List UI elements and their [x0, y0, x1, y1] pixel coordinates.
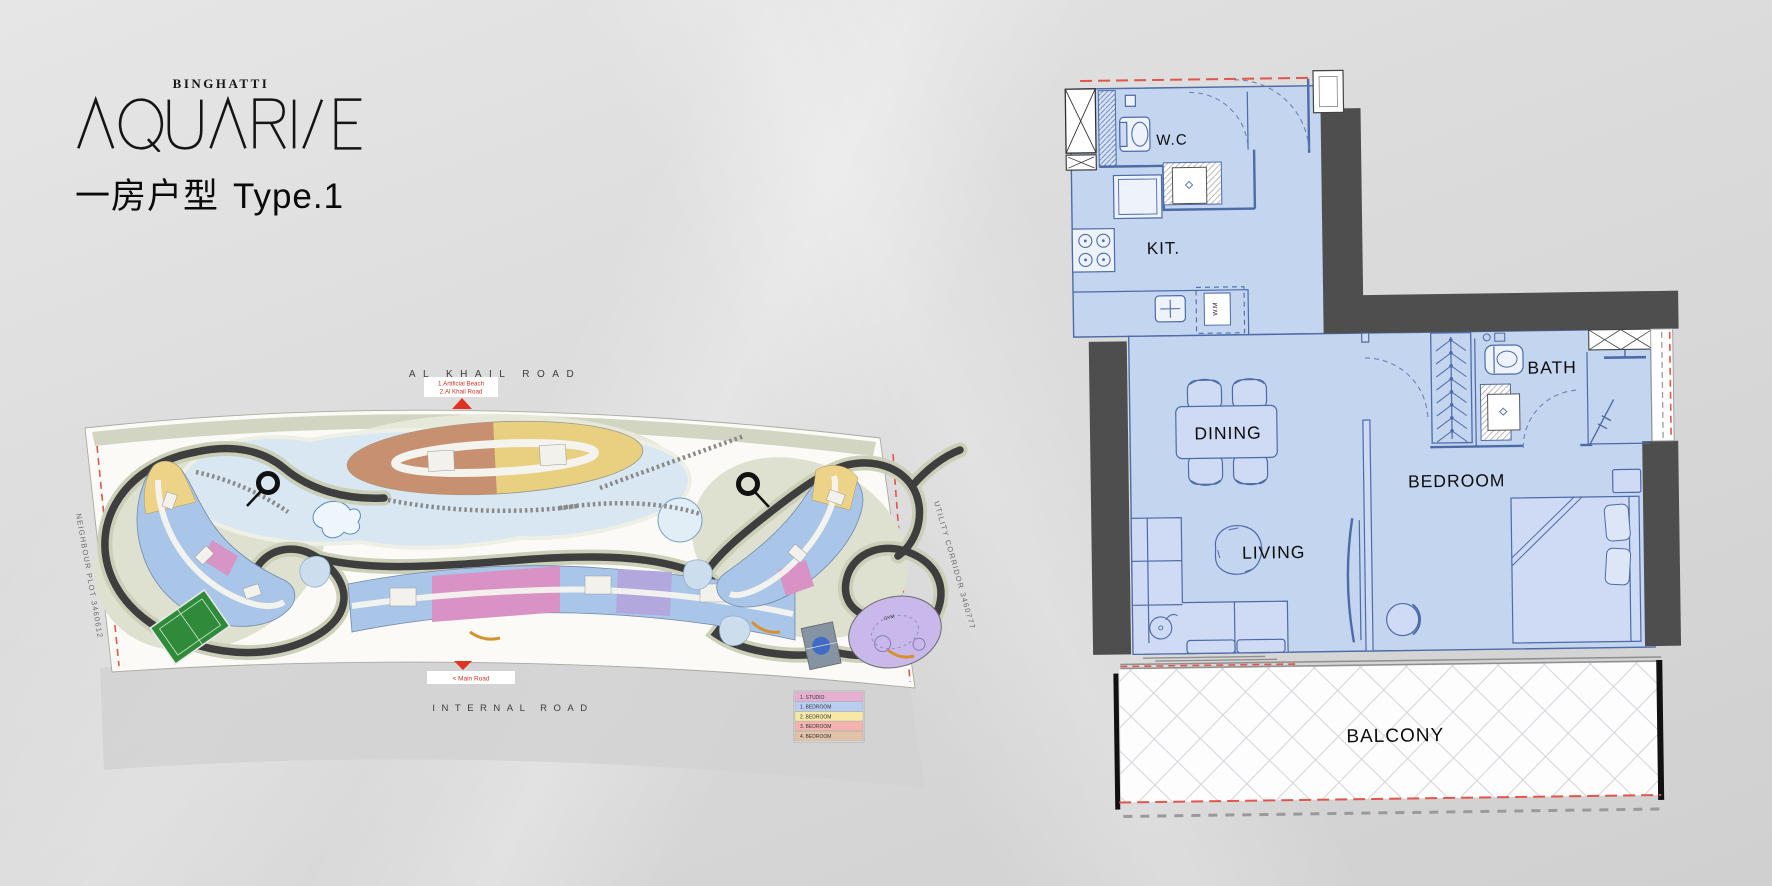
sliding-door: [1155, 659, 1277, 661]
room-label-balcony: BALCONY: [1346, 725, 1444, 747]
room-label-kitchen: KIT.: [1147, 239, 1181, 258]
kitchen-sink-icon: [1155, 296, 1185, 322]
legend-item: 4. BEDROOM: [800, 734, 831, 740]
shaft-right: [1589, 329, 1653, 350]
stove-icon: [1072, 229, 1115, 273]
unit-type-legend: 1. STUDIO 1. BEDROOM 2. BEDROOM 3. BEDRO…: [794, 691, 864, 742]
wall-top-right: [1321, 104, 1679, 334]
slide-canvas: BINGHATTI 一房户型Type.1: [0, 0, 1772, 886]
swivel-chair: [1386, 603, 1420, 635]
callout-south-label: < Main Road: [452, 676, 489, 683]
corridor-right: [1651, 329, 1675, 441]
wm-label: W.M: [1212, 303, 1219, 316]
legend-item: 1. STUDIO: [800, 695, 825, 701]
callout-north-line2: 2.Al Khail Road: [440, 389, 483, 396]
wall-right: [1642, 441, 1681, 646]
balcony-parapet-hatch: [1123, 809, 1660, 816]
fridge-icon: [1113, 175, 1162, 219]
toilet-icon: [1120, 117, 1150, 151]
legend-item: 3. BEDROOM: [800, 724, 831, 730]
plans-layer: GYM: [0, 0, 1772, 886]
legend-item: 2. BEDROOM: [800, 714, 831, 720]
service-shaft-hatch: [1098, 91, 1116, 167]
north-marker-triangle: [452, 398, 472, 409]
road-label-internal: INTERNAL ROAD: [432, 703, 593, 714]
callout-north: 1.Artificial Beach 2.Al Khail Road: [424, 377, 498, 409]
room-label-bath: BATH: [1527, 357, 1577, 378]
floor-plan: W.M: [1065, 66, 1685, 817]
wall-left: [1089, 341, 1131, 655]
balcony-edge-left: [1113, 674, 1120, 810]
legend-item: 1. BEDROOM: [800, 705, 831, 711]
room-label-dining: DINING: [1194, 423, 1262, 444]
room-label-wc: W.C: [1156, 132, 1188, 149]
callout-north-line1: 1.Artificial Beach: [438, 381, 485, 388]
bed: [1511, 496, 1641, 643]
room-label-bedroom: BEDROOM: [1408, 470, 1506, 491]
site-plan: GYM: [56, 369, 977, 788]
shaft-top-left: [1065, 89, 1096, 170]
wc-shelf: [1125, 95, 1135, 106]
wc-vanity: [1163, 162, 1222, 205]
sliding-door: [1143, 656, 1265, 658]
bedside-table: [1613, 469, 1641, 492]
room-label-living: LIVING: [1242, 542, 1306, 563]
unit-boundary-dash-top: [1080, 78, 1313, 81]
